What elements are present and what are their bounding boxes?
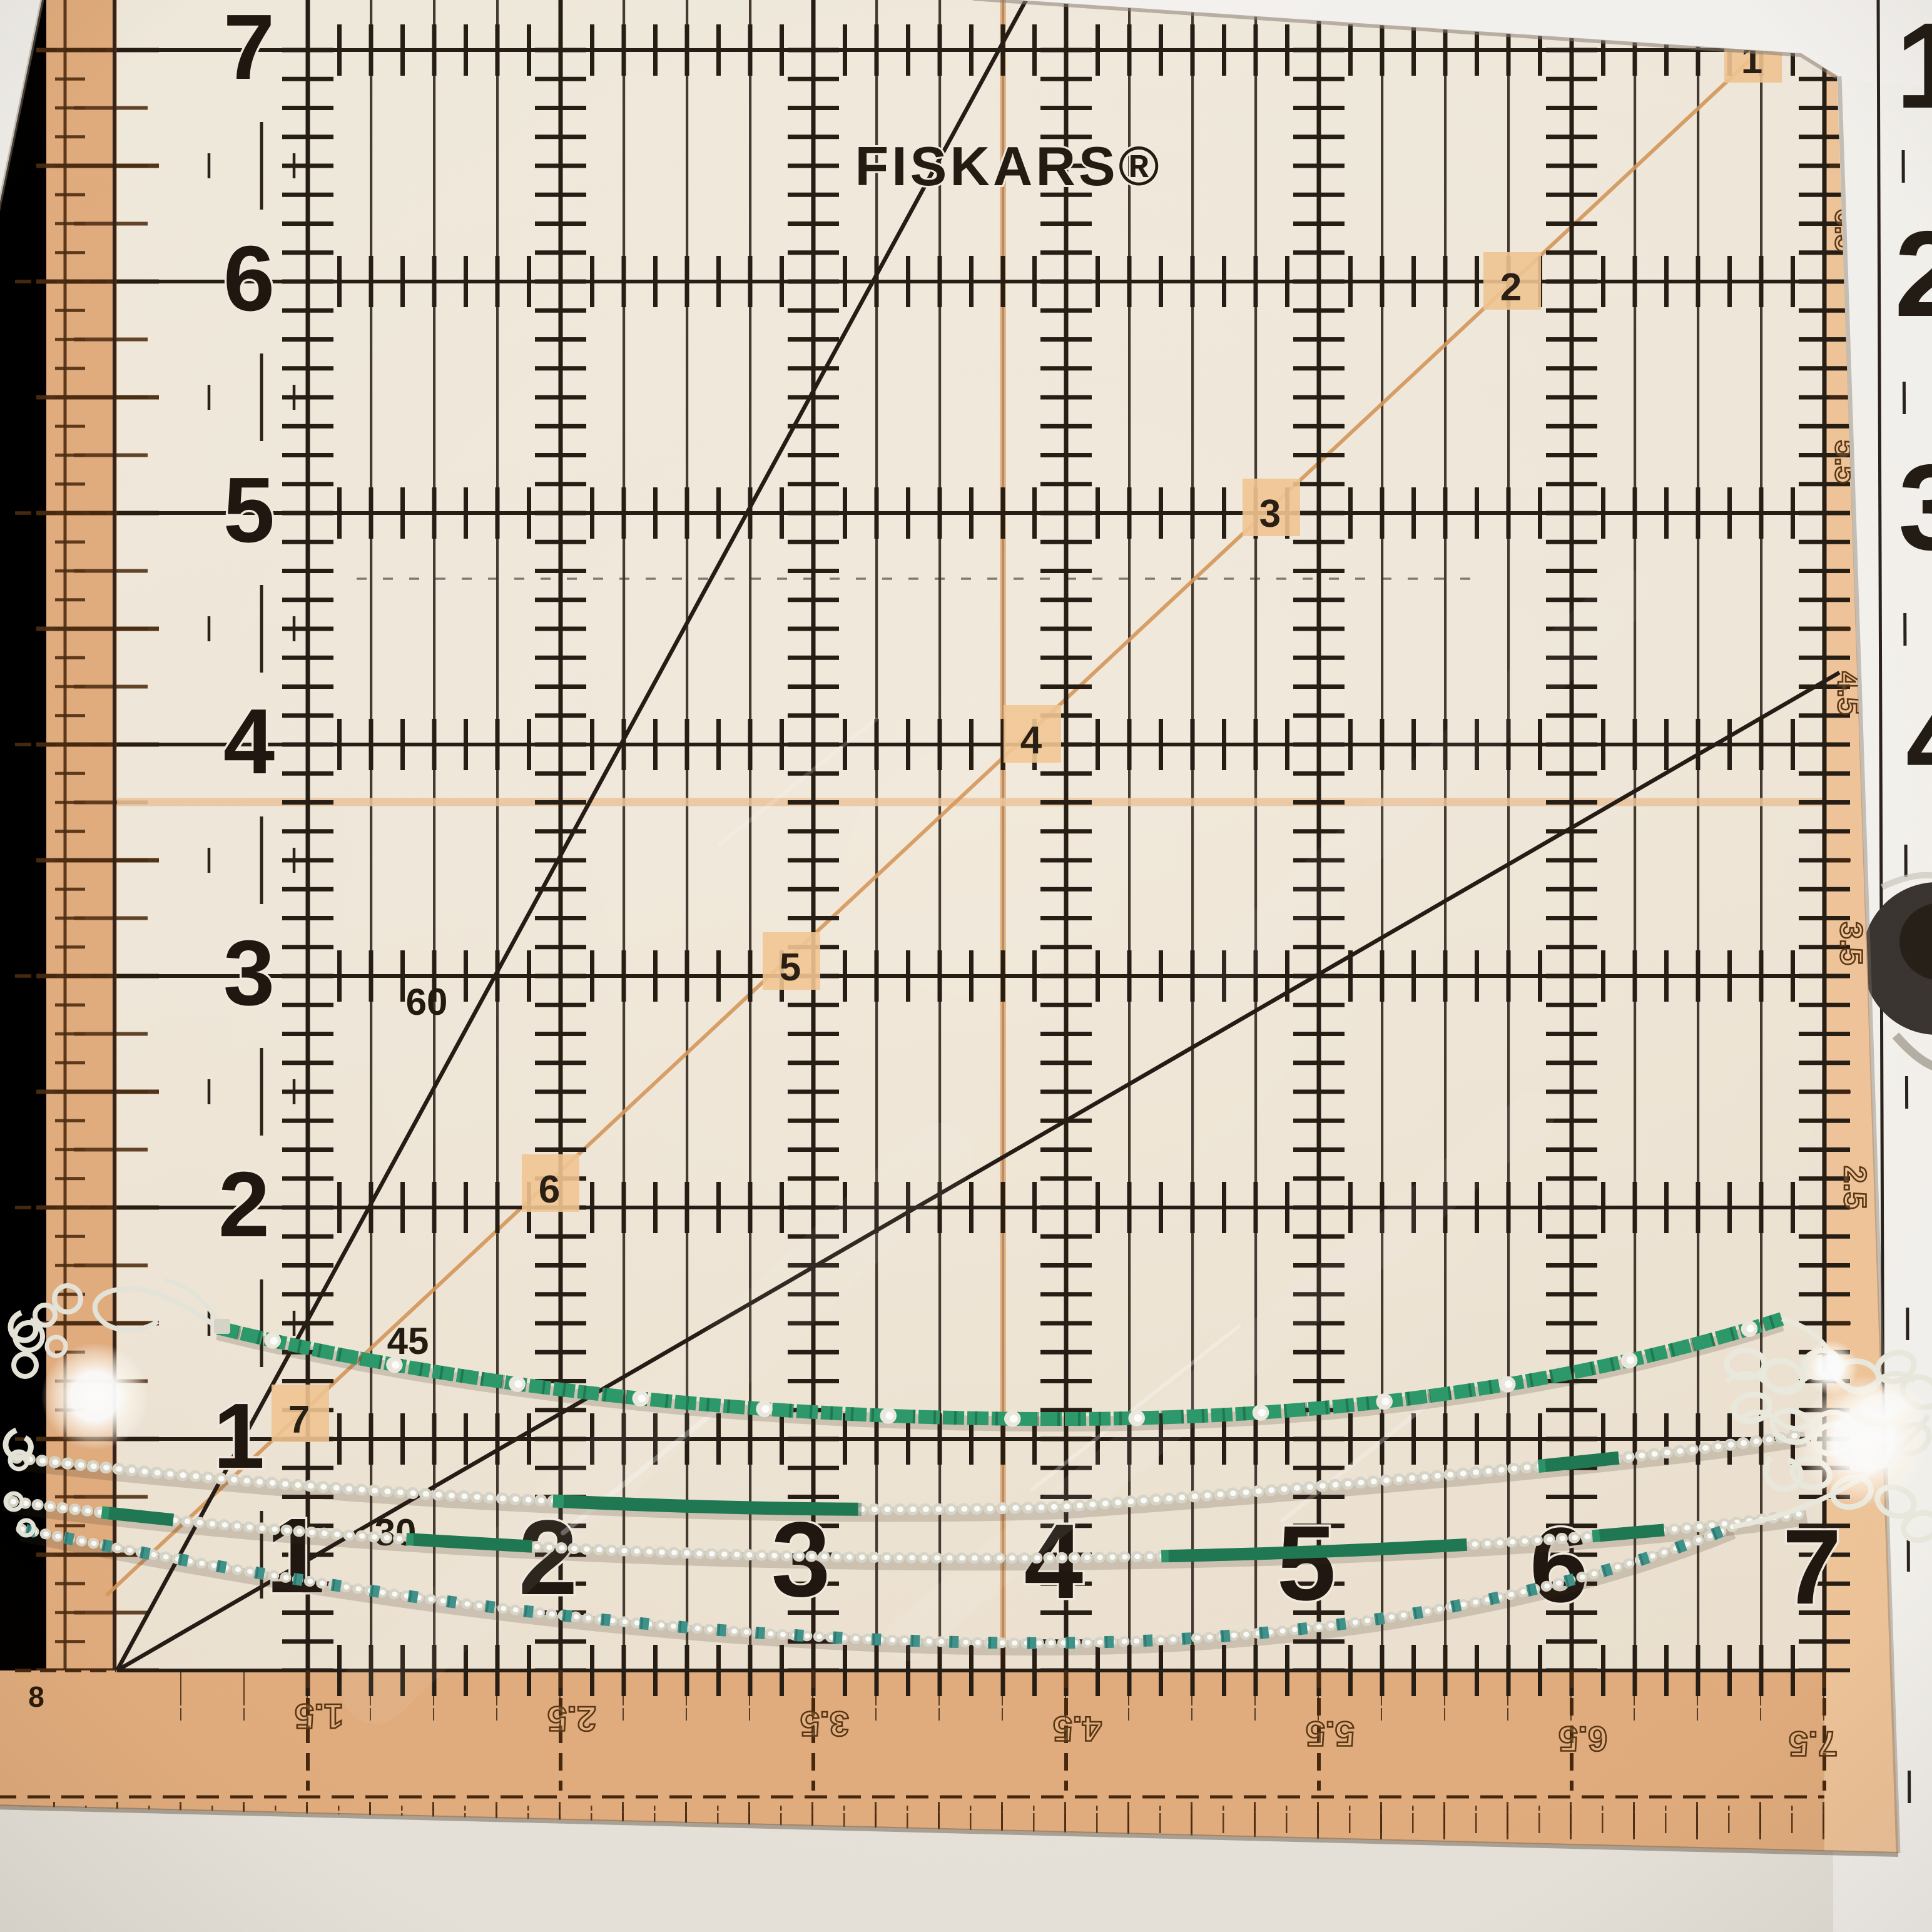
- vignette: [0, 0, 1932, 1932]
- scene: 1 2 3 4: [0, 0, 1932, 1932]
- photo-of-quilting-ruler-with-bracelets: 1 2 3 4: [0, 0, 1932, 1932]
